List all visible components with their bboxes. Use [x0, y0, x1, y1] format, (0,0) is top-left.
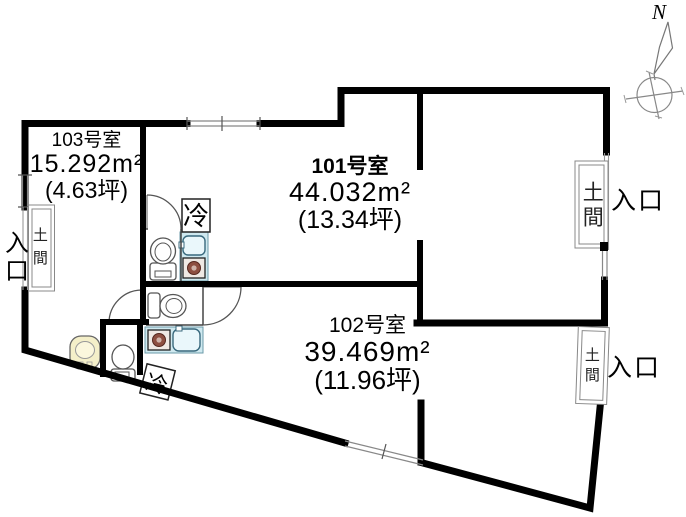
north-label: N	[652, 1, 666, 23]
door-arc	[203, 287, 241, 325]
window	[603, 250, 608, 280]
entrance-label-right-top: 入口	[611, 188, 665, 215]
room-103-area-sqm: 15.292m²	[18, 151, 155, 178]
refrigerator-box: 冷	[182, 199, 210, 232]
tap-icon	[176, 326, 182, 331]
doma-label-right-top: 土間	[580, 166, 602, 246]
room-102-label: 102号室 39.469m² (11.96坪)	[280, 315, 455, 394]
entrance-label-right-bottom: 入口	[607, 355, 661, 382]
room-101-area-tsubo: (13.34坪)	[266, 207, 434, 234]
toilet-icon	[150, 238, 176, 280]
room-101-label: 101号室 44.032m² (13.34坪)	[266, 156, 434, 233]
refrigerator-label: 冷	[183, 201, 209, 231]
kitchen-counter	[179, 232, 208, 281]
room-102-name: 102号室	[280, 315, 455, 337]
window	[187, 121, 260, 126]
sink-icon	[183, 236, 205, 255]
room-103-label: 103号室 15.292m² (4.63坪)	[18, 131, 155, 202]
doma-label-left: 土間	[31, 212, 47, 288]
room-103-name: 103号室	[18, 131, 155, 151]
door-arc	[109, 290, 142, 323]
room-103-area-tsubo: (4.63坪)	[18, 178, 155, 202]
floor-plan-drawing: 冷 冷	[0, 0, 686, 517]
toilet-icon	[148, 293, 186, 318]
doma-label-right-bottom: 土間	[583, 332, 599, 402]
room-102-area-sqm: 39.469m²	[280, 337, 455, 367]
kitchen-counter	[145, 326, 203, 353]
room-101-name: 101号室	[266, 156, 434, 178]
wall	[423, 403, 601, 508]
room-101-area-sqm: 44.032m²	[266, 178, 434, 207]
sink-icon	[173, 329, 200, 351]
entrance-label-left: 入口	[1, 220, 26, 295]
wall	[260, 91, 607, 153]
room-102-area-tsubo: (11.96坪)	[280, 367, 455, 395]
north-arrow-icon	[624, 22, 684, 119]
floor-plan: 冷 冷	[0, 0, 686, 517]
